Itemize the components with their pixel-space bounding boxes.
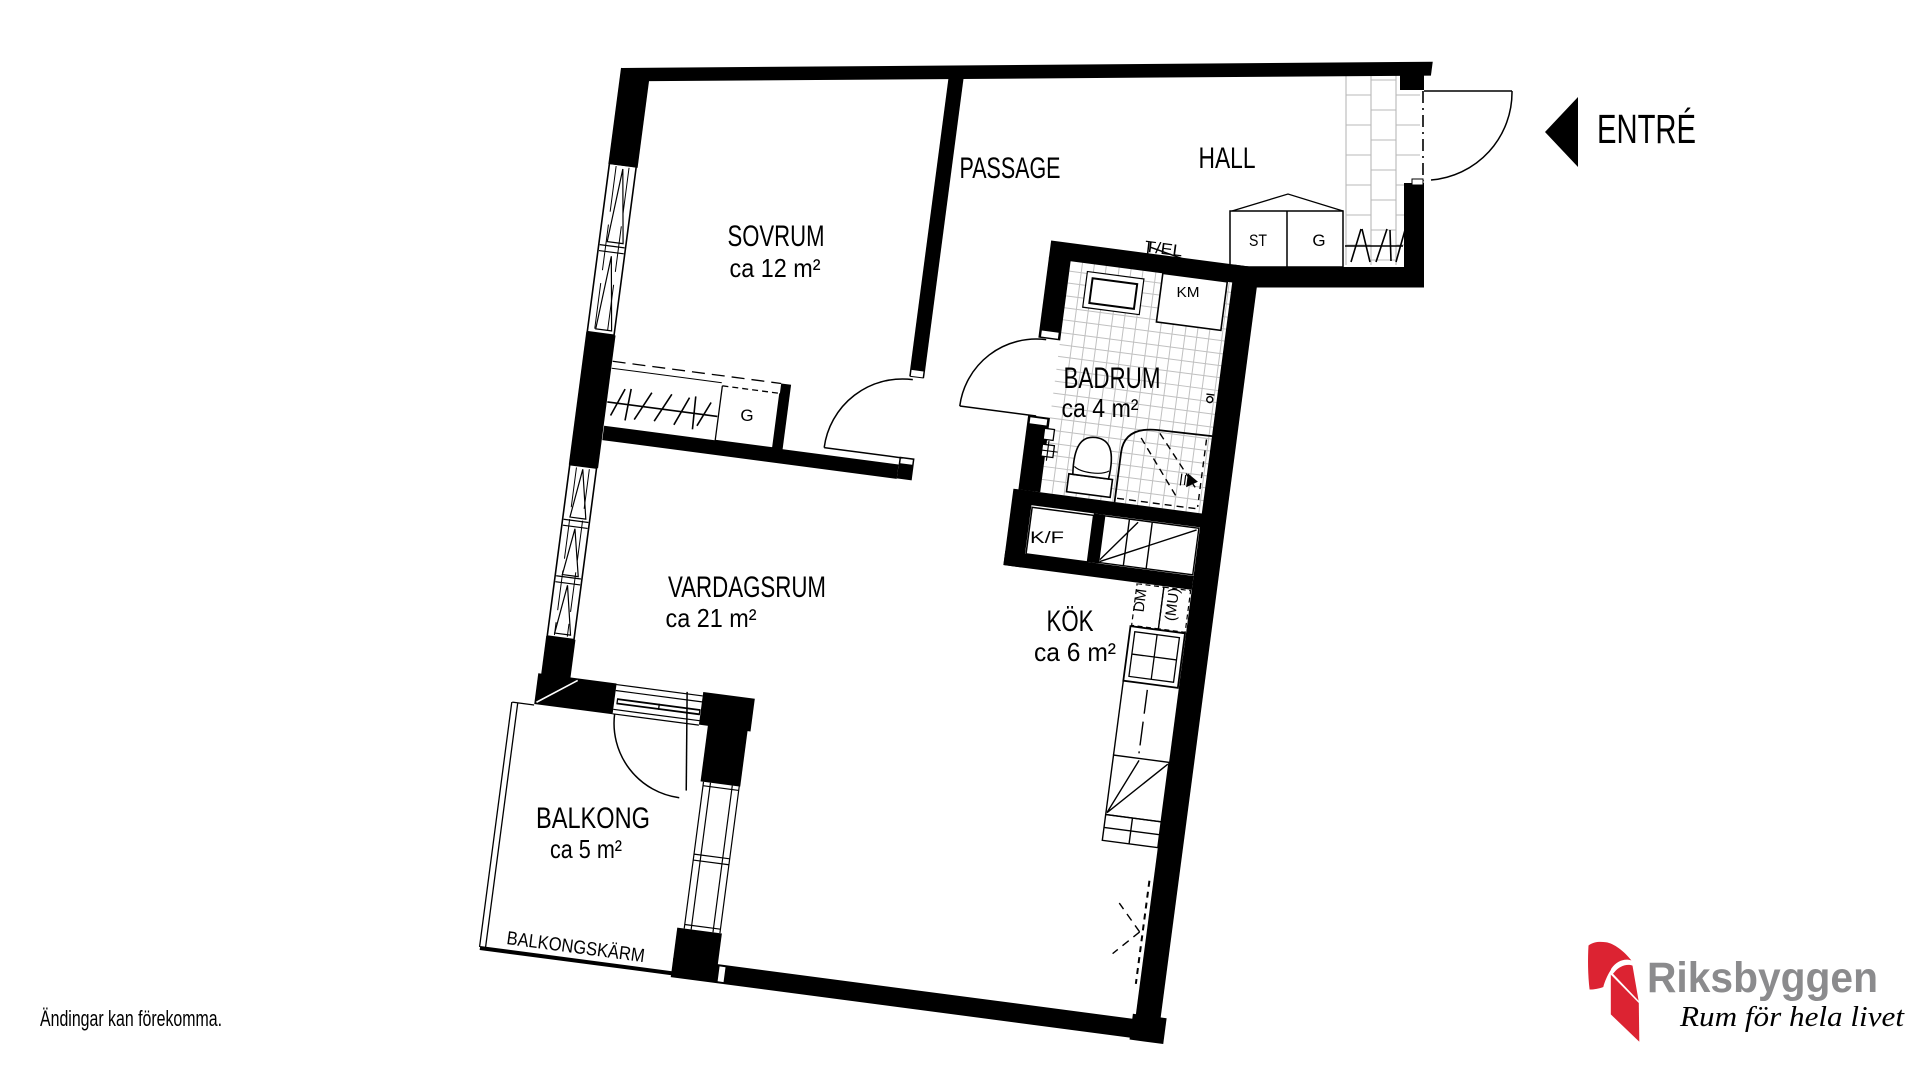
svg-text:G: G bbox=[740, 406, 753, 425]
svg-text:SOVRUM: SOVRUM bbox=[728, 220, 825, 253]
svg-text:Rum för hela livet: Rum för hela livet bbox=[1679, 1002, 1905, 1033]
svg-text:HALL: HALL bbox=[1199, 142, 1256, 175]
svg-text:PASSAGE: PASSAGE bbox=[960, 152, 1061, 185]
svg-text:VARDAGSRUM: VARDAGSRUM bbox=[668, 571, 826, 604]
svg-text:Ändingar kan förekomma.: Ändingar kan förekomma. bbox=[40, 1006, 222, 1031]
svg-text:DM: DM bbox=[1131, 588, 1151, 613]
svg-text:ST: ST bbox=[1249, 231, 1267, 250]
svg-text:ca 21 m²: ca 21 m² bbox=[666, 603, 757, 633]
svg-text:G: G bbox=[1312, 231, 1325, 250]
svg-text:BADRUM: BADRUM bbox=[1064, 362, 1161, 395]
svg-text:ca 4 m²: ca 4 m² bbox=[1062, 393, 1139, 423]
svg-text:KM: KM bbox=[1177, 284, 1200, 301]
svg-text:(MU): (MU) bbox=[1162, 587, 1183, 622]
svg-text:KÖK: KÖK bbox=[1047, 605, 1094, 638]
svg-text:BALKONG: BALKONG bbox=[536, 802, 650, 835]
svg-text:ENTRÉ: ENTRÉ bbox=[1597, 106, 1696, 152]
svg-text:ca 6 m²: ca 6 m² bbox=[1034, 637, 1116, 667]
svg-text:K/F: K/F bbox=[1030, 528, 1064, 547]
svg-text:ca 12 m²: ca 12 m² bbox=[730, 253, 821, 283]
svg-text:ca 5 m²: ca 5 m² bbox=[550, 834, 622, 864]
svg-text:Riksbyggen: Riksbyggen bbox=[1647, 954, 1878, 1002]
